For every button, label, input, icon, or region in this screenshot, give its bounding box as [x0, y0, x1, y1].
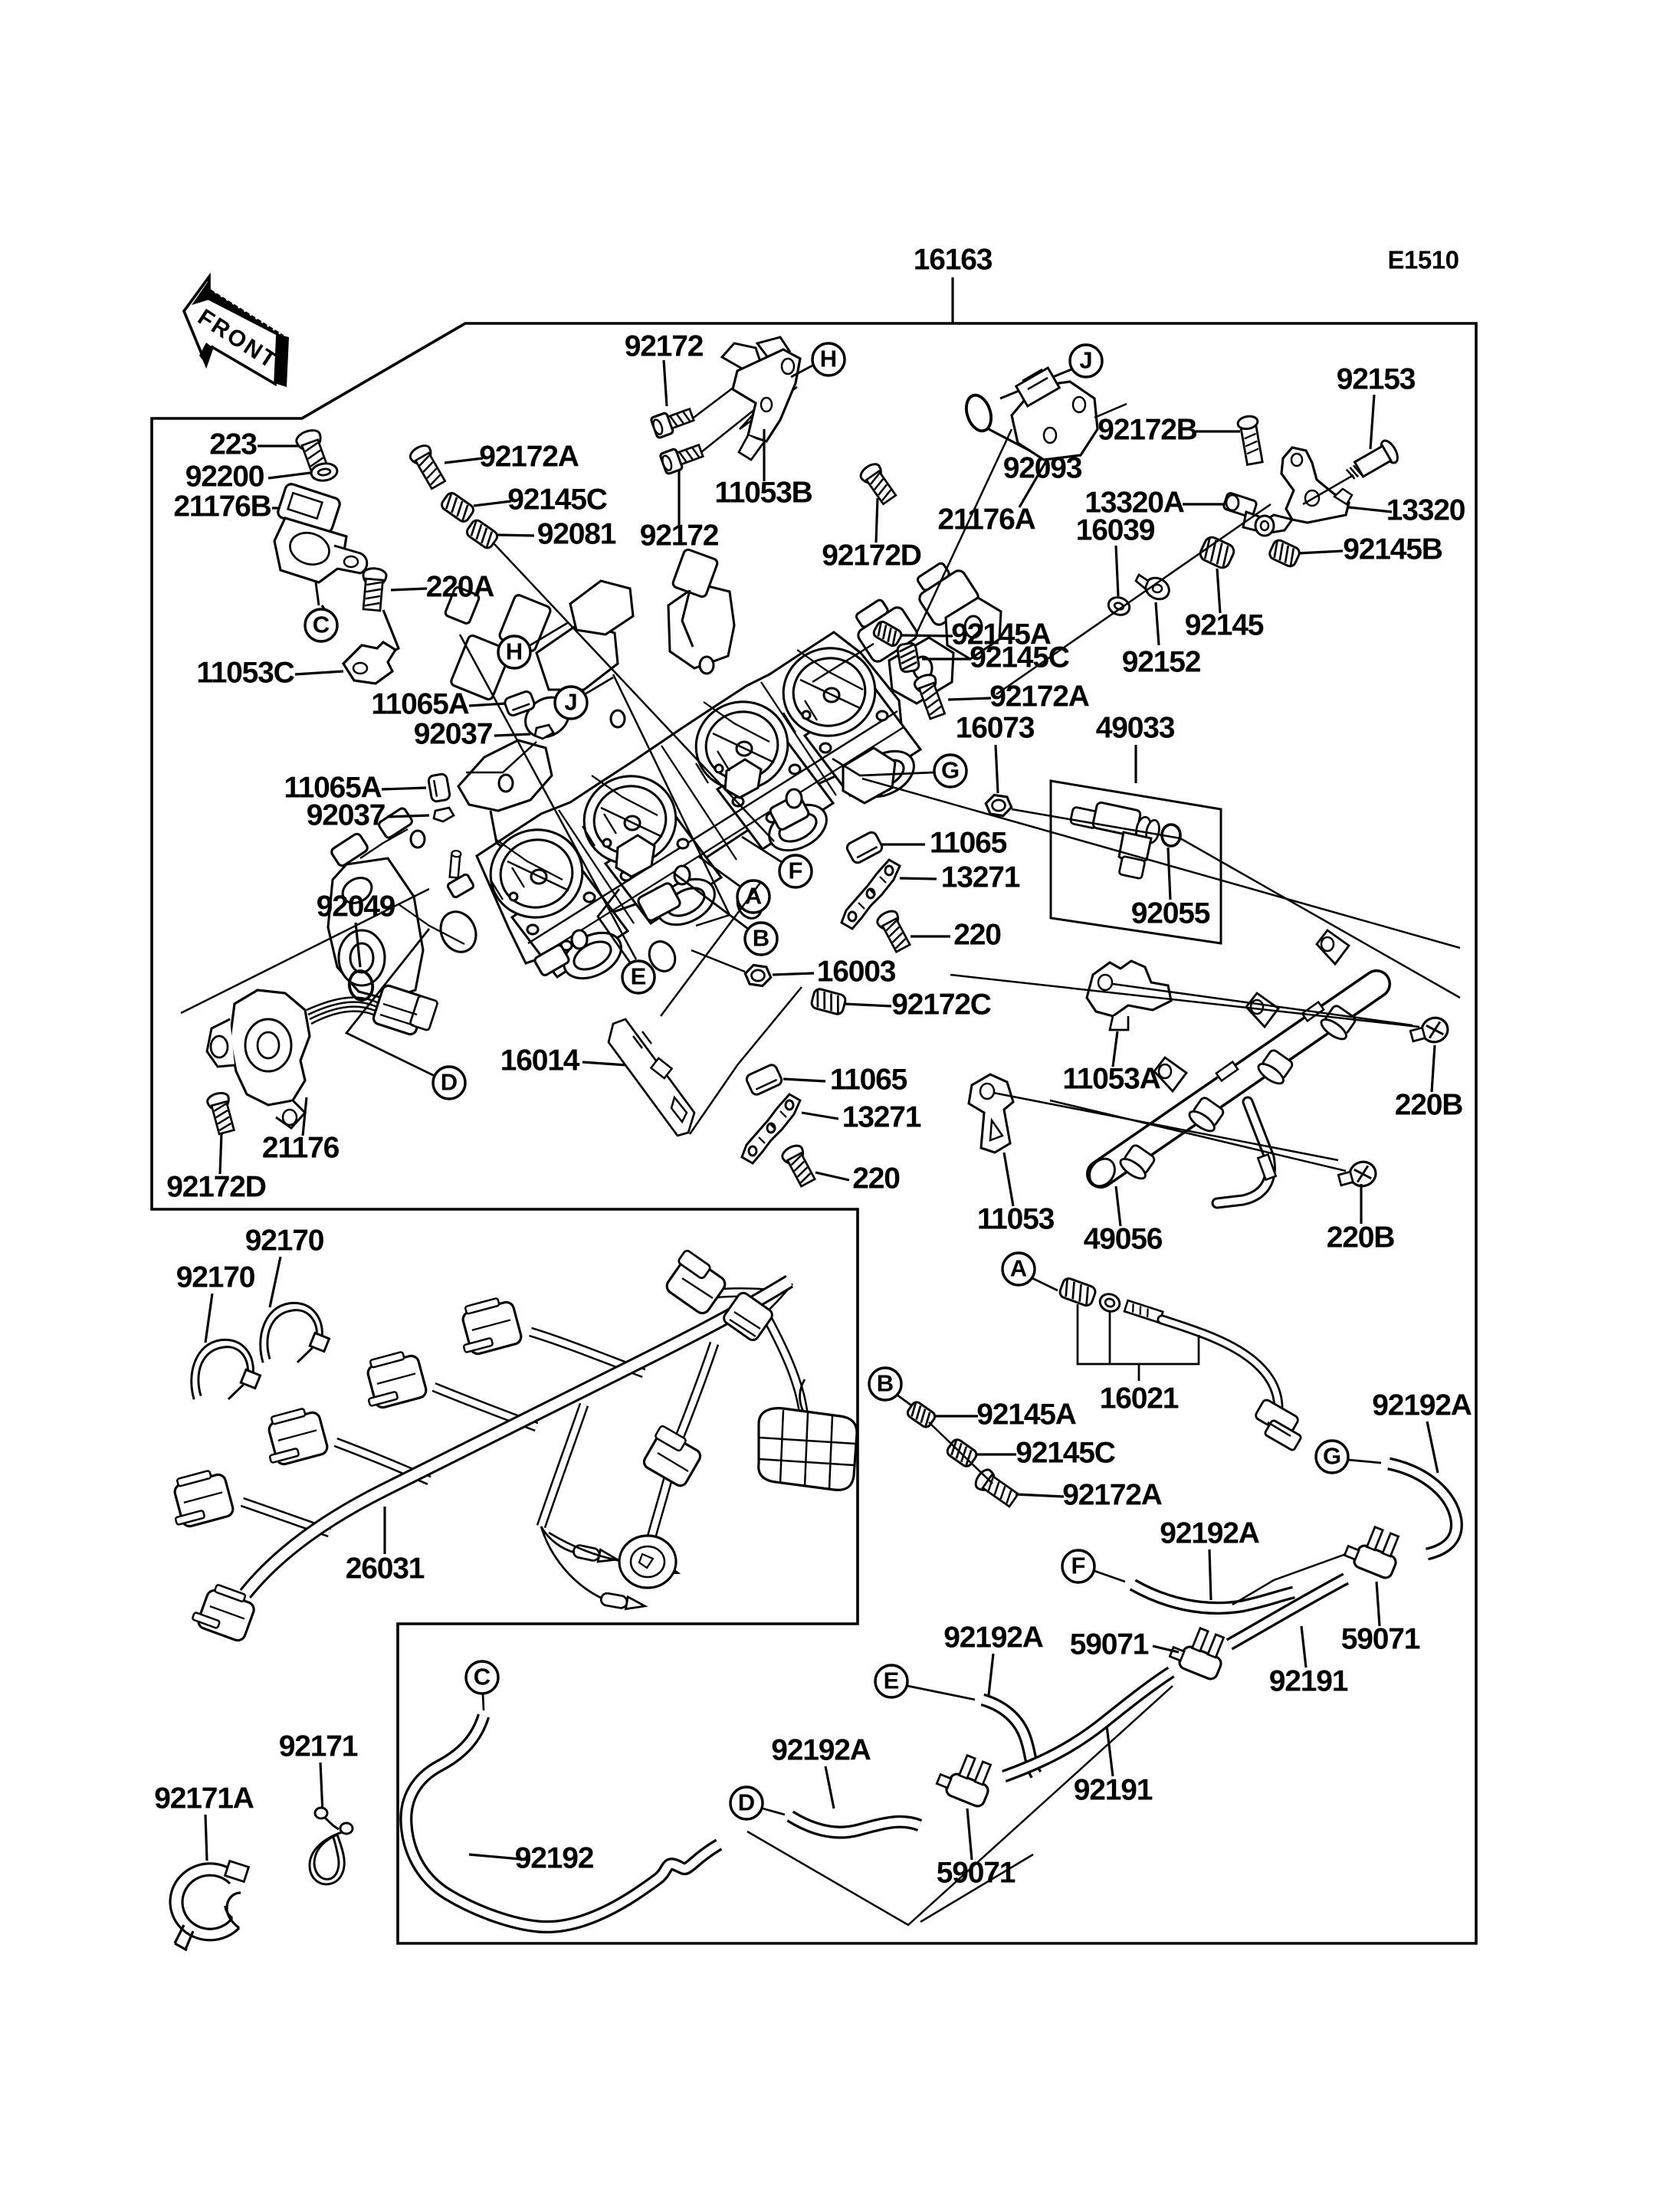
svg-text:D: D [441, 1069, 458, 1096]
svg-text:92192A: 92192A [943, 1621, 1043, 1654]
svg-text:92172A: 92172A [989, 680, 1089, 713]
svg-text:16021: 16021 [1100, 1382, 1179, 1415]
svg-text:16163: 16163 [914, 243, 993, 276]
svg-text:92037: 92037 [307, 798, 385, 831]
svg-text:13271: 13271 [842, 1100, 921, 1133]
svg-text:92192A: 92192A [771, 1733, 871, 1766]
svg-text:92191: 92191 [1074, 1773, 1153, 1806]
svg-text:16073: 16073 [956, 711, 1035, 744]
svg-text:E: E [884, 1667, 900, 1694]
svg-text:G: G [941, 757, 960, 784]
svg-text:92191: 92191 [1269, 1664, 1348, 1697]
svg-text:92055: 92055 [1131, 897, 1210, 930]
svg-text:21176A: 21176A [937, 503, 1035, 536]
svg-text:92145: 92145 [1185, 608, 1264, 641]
svg-text:92152: 92152 [1122, 645, 1201, 678]
svg-text:92170: 92170 [245, 1224, 324, 1257]
svg-text:92170: 92170 [176, 1261, 255, 1294]
svg-text:E1510: E1510 [1388, 246, 1459, 274]
svg-text:B: B [753, 925, 769, 952]
svg-text:92192A: 92192A [1160, 1517, 1259, 1549]
svg-text:16003: 16003 [817, 955, 896, 988]
svg-text:11065: 11065 [930, 826, 1007, 859]
svg-text:11053C: 11053C [196, 656, 294, 689]
svg-text:H: H [506, 638, 523, 665]
svg-text:92049: 92049 [317, 890, 395, 923]
svg-text:59071: 59071 [1341, 1622, 1420, 1655]
svg-text:59071: 59071 [1070, 1628, 1149, 1661]
svg-text:223: 223 [209, 428, 257, 461]
svg-text:220B: 220B [1327, 1221, 1394, 1254]
svg-text:13320: 13320 [1386, 494, 1465, 526]
svg-text:92172C: 92172C [891, 988, 991, 1021]
svg-text:J: J [1079, 347, 1092, 374]
svg-text:J: J [564, 689, 577, 716]
svg-text:H: H [820, 346, 837, 372]
svg-text:92037: 92037 [414, 717, 492, 750]
svg-text:21176: 21176 [262, 1131, 340, 1164]
svg-text:11065: 11065 [830, 1063, 907, 1096]
svg-text:92145A: 92145A [976, 1398, 1076, 1431]
svg-text:49033: 49033 [1096, 711, 1175, 744]
svg-text:92172: 92172 [640, 519, 719, 552]
svg-text:92172A: 92172A [1062, 1478, 1162, 1511]
svg-text:C: C [313, 612, 330, 638]
svg-text:92172A: 92172A [479, 440, 579, 473]
svg-text:B: B [877, 1370, 894, 1397]
svg-text:E: E [631, 963, 647, 990]
svg-text:220A: 220A [426, 570, 494, 603]
svg-text:92192A: 92192A [1372, 1389, 1472, 1421]
svg-text:92145C: 92145C [1016, 1436, 1115, 1469]
svg-text:92081: 92081 [537, 517, 616, 550]
svg-text:92153: 92153 [1337, 362, 1416, 395]
svg-text:220: 220 [953, 918, 1001, 951]
svg-text:26031: 26031 [346, 1552, 425, 1585]
svg-text:49056: 49056 [1084, 1222, 1163, 1255]
svg-text:13271: 13271 [941, 861, 1020, 894]
svg-text:G: G [1323, 1443, 1341, 1470]
svg-text:16014: 16014 [500, 1044, 580, 1077]
svg-text:16039: 16039 [1076, 513, 1155, 546]
svg-text:92172D: 92172D [166, 1170, 265, 1203]
svg-text:11053: 11053 [977, 1202, 1055, 1235]
svg-text:92171A: 92171A [154, 1782, 254, 1815]
svg-text:92172B: 92172B [1098, 413, 1196, 446]
svg-text:92145C: 92145C [507, 483, 607, 516]
svg-text:F: F [1071, 1553, 1086, 1579]
svg-text:92145B: 92145B [1343, 533, 1442, 566]
svg-text:92200: 92200 [185, 460, 264, 493]
svg-text:C: C [474, 1664, 491, 1690]
svg-text:A: A [1010, 1255, 1027, 1282]
svg-text:D: D [738, 1789, 755, 1816]
svg-text:92145C: 92145C [970, 641, 1069, 674]
svg-text:92172: 92172 [625, 330, 704, 362]
svg-text:A: A [745, 883, 762, 910]
svg-text:11053A: 11053A [1062, 1062, 1160, 1095]
svg-text:220: 220 [852, 1162, 900, 1195]
svg-text:220B: 220B [1395, 1088, 1462, 1121]
svg-text:92171: 92171 [279, 1730, 358, 1763]
svg-text:92172D: 92172D [822, 539, 920, 572]
svg-text:11065A: 11065A [371, 687, 469, 720]
svg-text:F: F [789, 857, 803, 884]
svg-text:92192: 92192 [515, 1841, 594, 1874]
svg-text:21176B: 21176B [173, 490, 271, 523]
